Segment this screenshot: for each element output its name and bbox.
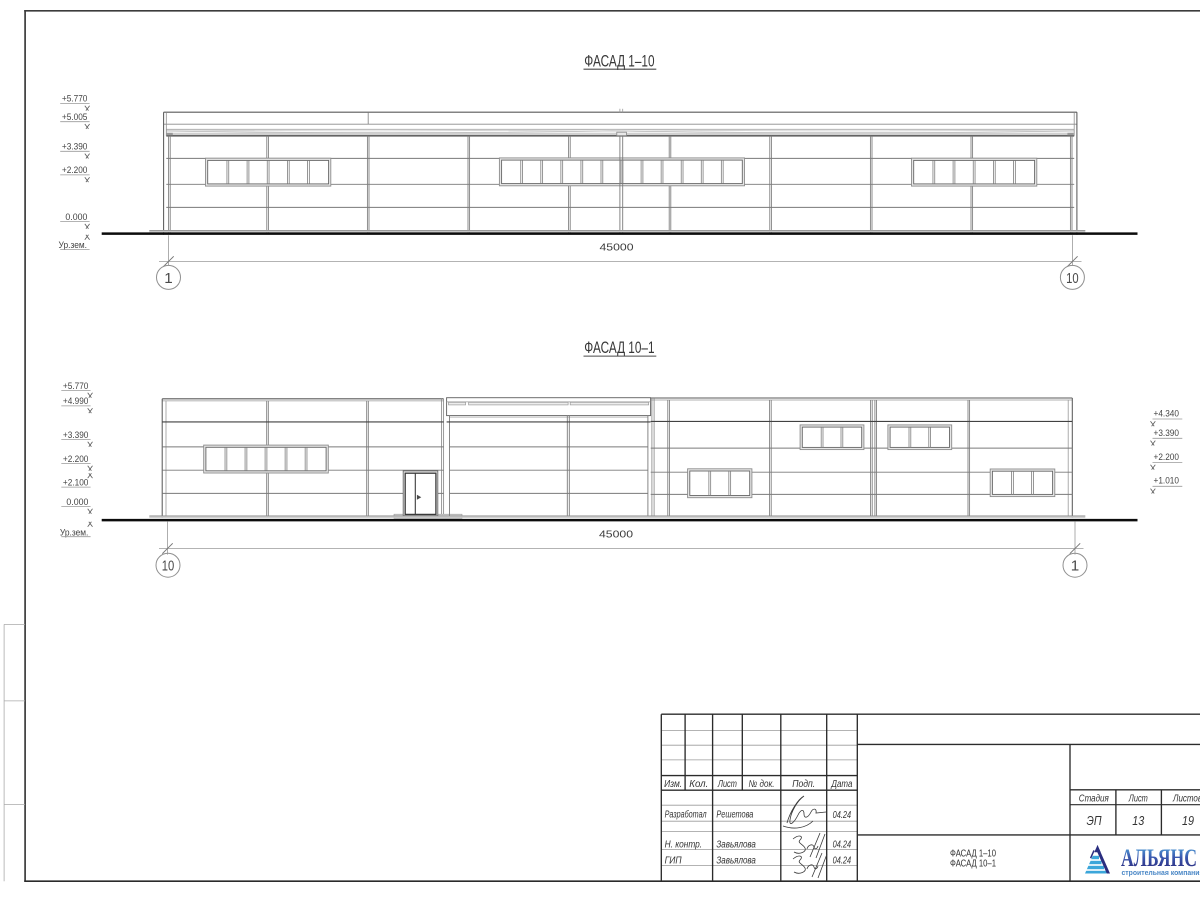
- svg-text:+2.200: +2.200: [62, 165, 88, 175]
- svg-text:0.000: 0.000: [66, 497, 88, 507]
- svg-text:ФАСАД 10–1: ФАСАД 10–1: [584, 338, 654, 357]
- svg-text:+2.100: +2.100: [63, 477, 89, 487]
- svg-text:Подп.: Подп.: [792, 779, 815, 790]
- svg-text:+3.390: +3.390: [62, 142, 88, 152]
- svg-text:+5.770: +5.770: [62, 94, 88, 104]
- svg-text:+4.990: +4.990: [63, 396, 89, 406]
- svg-text:+3.390: +3.390: [1154, 428, 1180, 438]
- svg-text:Н. контр.: Н. контр.: [665, 839, 703, 850]
- svg-text:+3.390: +3.390: [63, 430, 89, 440]
- svg-text:45000: 45000: [600, 242, 634, 253]
- svg-text:+1.010: +1.010: [1154, 476, 1180, 486]
- svg-text:№ док.: № док.: [749, 779, 775, 790]
- svg-text:строительная компания: строительная компания: [1122, 868, 1200, 877]
- svg-text:Дата: Дата: [831, 779, 853, 790]
- svg-text:04.24: 04.24: [833, 856, 852, 867]
- svg-text:04.24: 04.24: [833, 840, 852, 851]
- svg-text:Лист: Лист: [717, 779, 737, 790]
- svg-text:Лист: Лист: [1128, 794, 1148, 805]
- svg-text:+4.340: +4.340: [1154, 409, 1180, 419]
- svg-text:13: 13: [1132, 813, 1145, 828]
- svg-text:1: 1: [1071, 558, 1079, 575]
- svg-text:Завьялова: Завьялова: [716, 855, 756, 866]
- svg-text:Ур.зем.: Ур.зем.: [60, 527, 89, 537]
- svg-text:+2.200: +2.200: [63, 454, 89, 464]
- svg-text:Разработал: Разработал: [665, 809, 707, 821]
- svg-text:Листов: Листов: [1172, 794, 1200, 805]
- svg-text:04.24: 04.24: [833, 810, 852, 821]
- svg-text:+5.005: +5.005: [62, 112, 88, 122]
- svg-text:+2.200: +2.200: [1154, 452, 1180, 462]
- svg-text:19: 19: [1182, 813, 1194, 828]
- svg-text:1: 1: [164, 270, 172, 287]
- svg-text:Стадия: Стадия: [1079, 794, 1110, 805]
- svg-text:+5.770: +5.770: [63, 381, 89, 391]
- svg-text:10: 10: [1066, 270, 1079, 287]
- svg-text:45000: 45000: [599, 530, 633, 541]
- svg-text:Завьялова: Завьялова: [716, 839, 756, 850]
- svg-text:ФАСАД 1–10: ФАСАД 1–10: [584, 51, 654, 70]
- svg-text:Изм.: Изм.: [664, 779, 682, 790]
- svg-text:0.000: 0.000: [65, 212, 87, 222]
- svg-text:ФАСАД 10–1: ФАСАД 10–1: [950, 858, 996, 869]
- svg-text:Решетова: Решетова: [716, 810, 753, 821]
- svg-text:10: 10: [162, 558, 175, 575]
- svg-text:Кол.: Кол.: [689, 779, 708, 790]
- svg-text:Ур.зем.: Ур.зем.: [59, 240, 88, 250]
- svg-text:ГИП: ГИП: [665, 855, 683, 866]
- svg-text:ЭП: ЭП: [1087, 813, 1102, 828]
